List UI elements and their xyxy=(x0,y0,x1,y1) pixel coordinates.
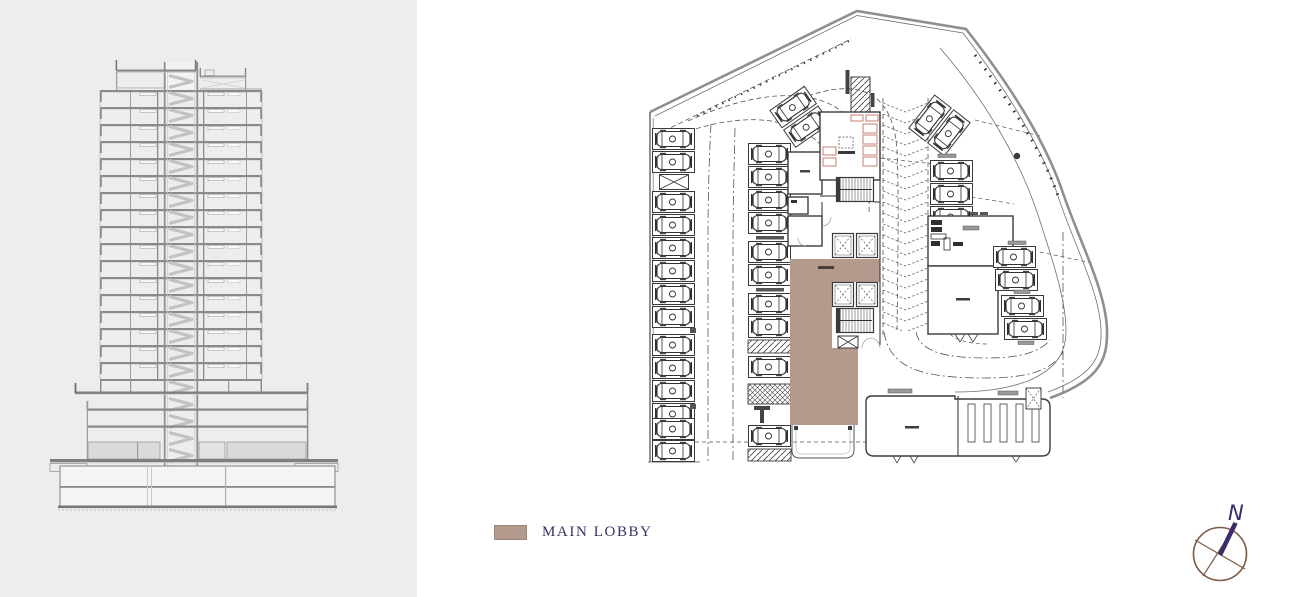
compass-rose-icon: N xyxy=(1186,497,1258,589)
lobby-label-mark xyxy=(818,266,834,269)
section-panel xyxy=(0,0,417,597)
floor-plan-wrap xyxy=(630,0,1120,480)
lobby-entrance xyxy=(792,425,854,458)
main-lobby-swatch xyxy=(494,525,527,540)
floor-plan-drawing xyxy=(630,0,1120,480)
storage-box xyxy=(660,175,689,190)
bottom-building xyxy=(866,388,1050,463)
building-section-drawing xyxy=(0,0,417,597)
legend: MAIN LOBBY xyxy=(494,525,653,540)
north-label: N xyxy=(1228,501,1244,525)
stair-core xyxy=(164,62,198,508)
basement-levels xyxy=(58,466,337,510)
page: MAIN LOBBY N xyxy=(0,0,1308,597)
ancillary-rooms xyxy=(788,152,822,246)
main-lobby-legend-label: MAIN LOBBY xyxy=(542,526,653,539)
right-wing xyxy=(928,153,1047,345)
entry-ramp xyxy=(846,70,875,114)
parking-column-b xyxy=(748,144,791,462)
parking-column-a xyxy=(653,129,697,462)
compass: N xyxy=(1186,497,1258,589)
